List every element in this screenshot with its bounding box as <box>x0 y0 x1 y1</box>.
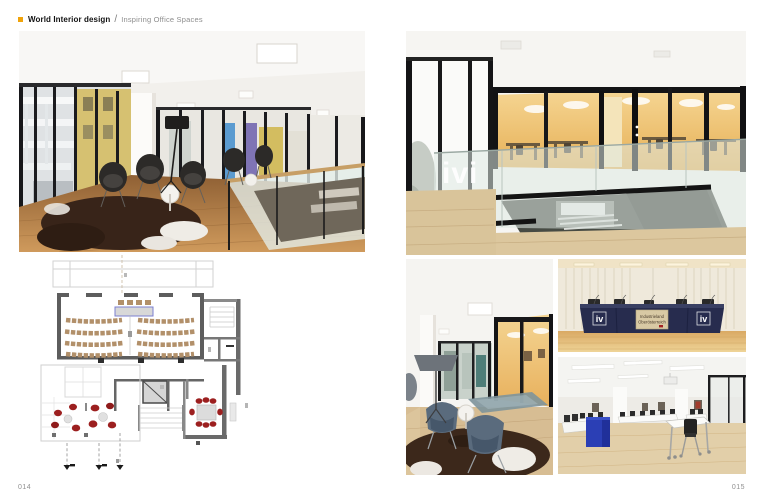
banner-line1: Industrieland <box>640 314 665 319</box>
lounge-illustration <box>19 31 365 252</box>
projector <box>664 377 677 384</box>
photo-seminar-room <box>558 357 746 474</box>
photo-lounge-detail <box>406 259 553 475</box>
banner: Industrieland Oberösterreich <box>636 310 668 329</box>
photo-atrium-glass-rooms: ivi <box>406 31 746 255</box>
banner-line2: Oberösterreich <box>638 320 666 325</box>
atrium-illustration: ivi <box>406 31 746 255</box>
floor-plan-svg <box>40 253 265 493</box>
iv-logo-right-text: iv <box>700 314 708 324</box>
floor-plan-drawing <box>40 253 265 493</box>
photo-office-lounge <box>19 31 365 252</box>
page-number-right: 015 <box>732 484 745 491</box>
title-separator: / <box>114 14 117 25</box>
iv-logo-left-text: iv <box>596 314 604 324</box>
book-spread: World Interior design / Inspiring Office… <box>0 0 766 500</box>
seminar-illustration <box>558 357 746 474</box>
ceiling <box>558 259 746 268</box>
header: World Interior design / Inspiring Office… <box>18 13 203 25</box>
bullet-square-icon <box>18 17 23 22</box>
lounge-tall-illustration <box>406 259 553 475</box>
photo-press-desk: iv iv Industrieland Oberösterreich <box>558 259 746 352</box>
page-number-left: 014 <box>18 484 31 491</box>
series-title: World Interior design <box>28 15 110 24</box>
press-desk-illustration: iv iv Industrieland Oberösterreich <box>558 259 746 352</box>
glass-etch-logo: ivi <box>442 157 478 190</box>
press-desk: iv iv Industrieland Oberösterreich <box>580 304 724 333</box>
blue-lectern <box>586 417 610 447</box>
page-subtitle: Inspiring Office Spaces <box>121 15 203 24</box>
